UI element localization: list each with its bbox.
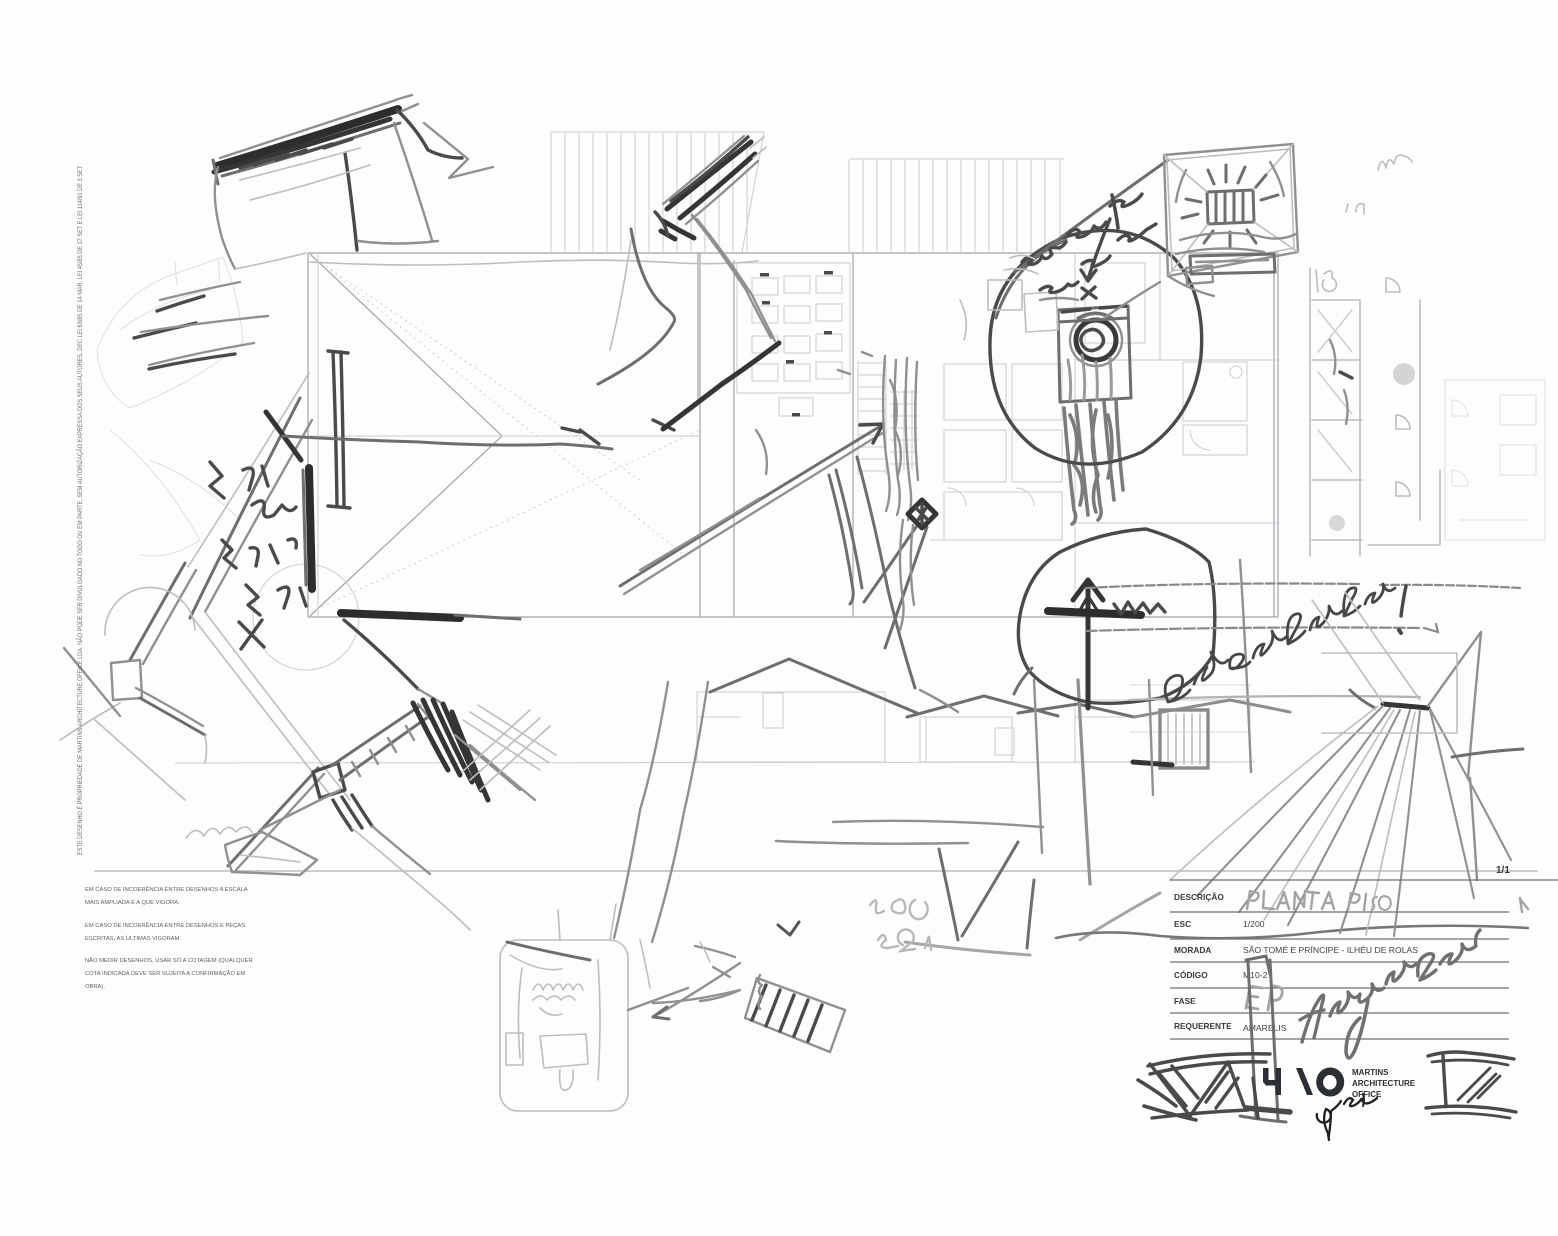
svg-text:REQUERENTE: REQUERENTE bbox=[1174, 1021, 1232, 1031]
svg-text:M10-2: M10-2 bbox=[1243, 970, 1268, 980]
svg-text:SÃO TOMÉ E PRÍNCIPE - ILHÉU DE: SÃO TOMÉ E PRÍNCIPE - ILHÉU DE ROLAS bbox=[1243, 945, 1418, 955]
svg-text:ESCRITAS, AS ÚLTIMAS VIGORAM.: ESCRITAS, AS ÚLTIMAS VIGORAM. bbox=[85, 935, 181, 942]
svg-text:1/200: 1/200 bbox=[1243, 919, 1265, 929]
svg-text:AMARELIS: AMARELIS bbox=[1243, 1023, 1287, 1033]
svg-text:FASE: FASE bbox=[1174, 996, 1196, 1006]
svg-text:OBRA).: OBRA). bbox=[85, 984, 105, 990]
svg-text:ESTE DESENHO É PROPRIEDADE DE: ESTE DESENHO É PROPRIEDADE DE MARTINS AR… bbox=[77, 165, 84, 855]
svg-text:CÓDIGO: CÓDIGO bbox=[1174, 969, 1208, 980]
svg-text:MORADA: MORADA bbox=[1174, 945, 1211, 955]
svg-text:ESC: ESC bbox=[1174, 919, 1191, 929]
svg-text:EM CASO DE INCOERÊNCIA ENTRE D: EM CASO DE INCOERÊNCIA ENTRE DESENHOS E … bbox=[85, 921, 245, 929]
svg-text:EM CASO DE INCOERÊNCIA ENTRE D: EM CASO DE INCOERÊNCIA ENTRE DESENHOS A … bbox=[85, 885, 248, 893]
svg-text:MAIS AMPLIADA É A QUE VIGORA.: MAIS AMPLIADA É A QUE VIGORA. bbox=[85, 899, 180, 906]
svg-text:MARTINS: MARTINS bbox=[1352, 1068, 1389, 1077]
svg-text:COTA INDICADA DEVE SER SUJEITA: COTA INDICADA DEVE SER SUJEITA A CONFIRM… bbox=[85, 970, 245, 977]
svg-text:1/1: 1/1 bbox=[1496, 865, 1510, 876]
svg-text:ARCHITECTURE: ARCHITECTURE bbox=[1352, 1079, 1416, 1088]
svg-text:DESCRIÇÃO: DESCRIÇÃO bbox=[1174, 892, 1224, 902]
svg-text:NÃO MEDIR DESENHOS, USAR SÓ A: NÃO MEDIR DESENHOS, USAR SÓ A COTAGEM (Q… bbox=[85, 957, 253, 964]
